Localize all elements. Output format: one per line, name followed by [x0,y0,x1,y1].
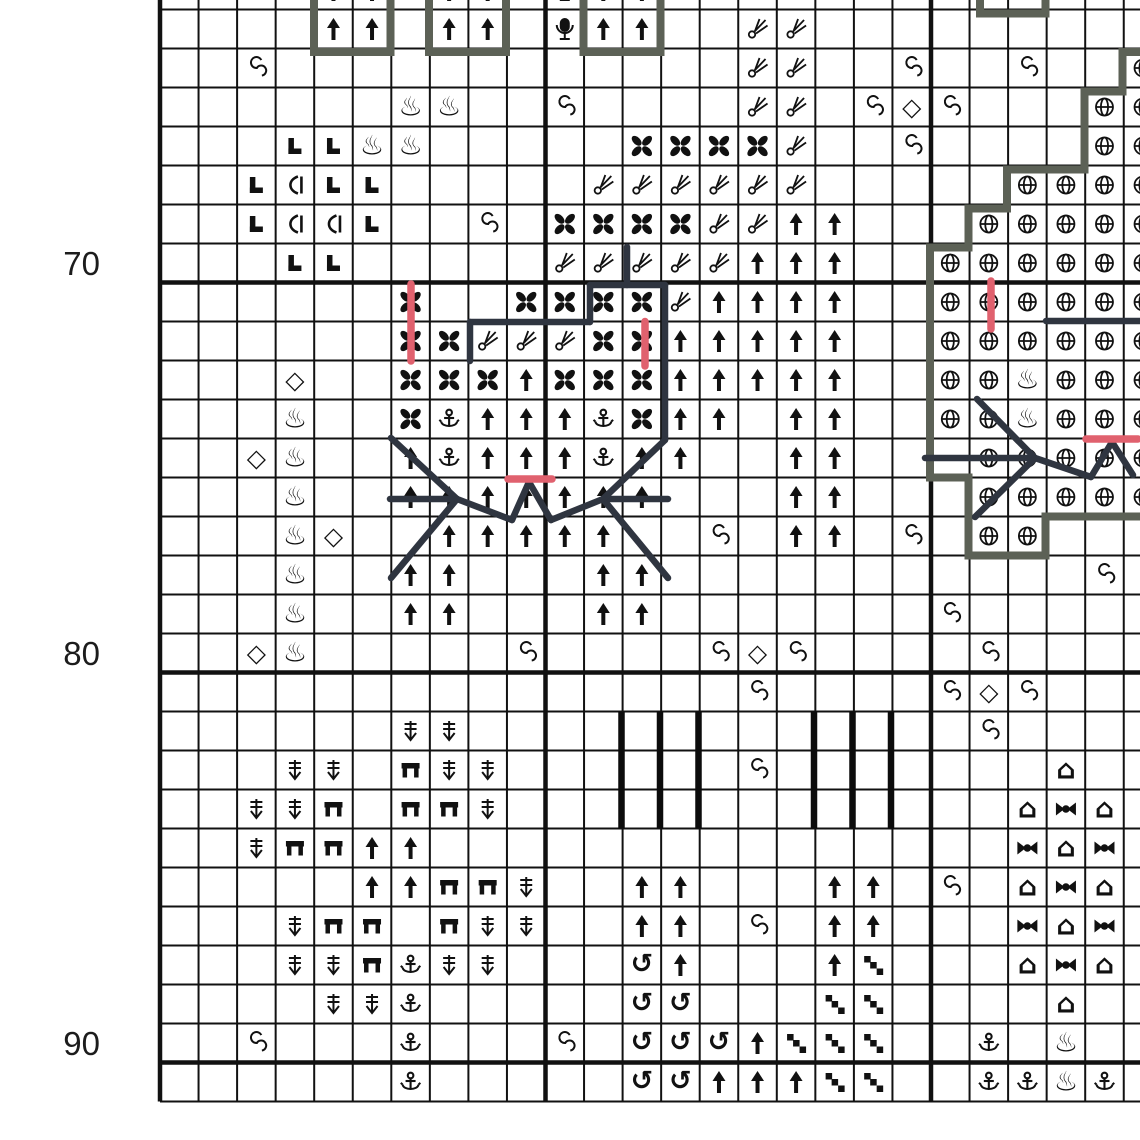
symbol-clover-flower [668,212,692,236]
symbol-clover-flower [630,290,654,314]
symbol-squiggle [906,57,921,75]
symbol-open-scissors [518,331,537,350]
symbol-house: ⌂ [1056,911,1075,942]
symbol-hot-springs: ♨ [1015,404,1039,435]
symbol-arrow-up [674,876,687,898]
symbol-squiggle [482,213,497,231]
symbol-circled-bean [1057,177,1074,194]
symbol-arrow-up [443,18,456,40]
symbol-hot-springs: ♨ [1054,1028,1078,1059]
symbol-hot-springs: ♨ [1015,365,1039,396]
symbol-clover-flower [437,368,461,392]
symbol-circled-bean [1135,450,1140,467]
symbol-corner-block [288,138,301,154]
symbol-circled-bean [1019,333,1036,350]
symbol-angle-bracket-bar [290,216,301,233]
symbol-undo-circle-arrow: ↺ [631,988,654,1019]
symbol-circled-bean [1019,489,1036,506]
symbol-arrow-up [404,564,417,586]
symbol-house: ⌂ [1056,989,1075,1020]
symbol-squiggle [983,642,998,660]
symbol-arrow-up [790,213,803,235]
symbol-squiggle [906,135,921,153]
symbol-anchor [594,410,614,427]
symbol-circled-bean [1019,177,1036,194]
symbol-arrow-up [597,564,610,586]
symbol-arrow-up [790,408,803,430]
symbol-circled-bean [1135,294,1140,311]
symbol-house: ⌂ [1095,794,1114,825]
symbol-undo-circle-arrow: ↺ [669,1027,692,1058]
symbol-table-block [402,802,420,817]
symbol-stair-blocks [864,1073,883,1092]
symbol-circled-bean [1135,99,1140,116]
symbol-circled-bean [942,333,959,350]
symbol-arrow-up [790,525,803,547]
symbol-house: ⌂ [1095,950,1114,981]
chart-canvas: ♨♨◇♨♨◇♨♨♨◇♨♨♨◇♨♨◇♨◇◇⌂⌂⌂⌂⌂⌂⌂↺⌂⌂↺↺⌂↺↺↺♨↺↺♨ [0,0,1140,1140]
symbol-open-scissors [749,58,768,77]
symbol-arrow-up [635,0,648,1]
symbol-candy-bowtie [1056,959,1076,972]
symbol-undo-circle-arrow: ↺ [669,1066,692,1097]
symbol-circled-bean [980,372,997,389]
symbol-arrow-up [867,915,880,937]
symbol-squiggle [945,681,960,699]
symbol-corner-block [366,216,379,232]
symbol-anchor [979,1034,999,1051]
symbol-arrow-up [481,447,494,469]
symbol-circled-bean [980,216,997,233]
symbol-squiggle [945,96,960,114]
symbol-candy-bowtie [1017,920,1037,933]
symbol-circled-bean [942,294,959,311]
symbol-arrow-up [558,486,571,508]
symbol-open-scissors [556,253,575,272]
symbol-clover-flower [591,290,615,314]
symbol-squiggle [906,525,921,543]
symbol-open-scissors [710,214,729,233]
symbol-arrow-up [597,18,610,40]
symbol-table-block [479,880,497,895]
symbol-arrow-up [828,408,841,430]
symbol-clover-flower [553,290,577,314]
symbol-arrow-up [828,486,841,508]
symbol-clover-flower [399,407,423,431]
symbol-undo-circle-arrow: ↺ [631,949,654,980]
symbol-arrow-up [481,18,494,40]
symbol-circled-bean [1135,60,1140,77]
symbol-arrow-up [828,447,841,469]
symbol-arrow-up [481,486,494,508]
symbol-open-scissors [787,58,806,77]
symbol-candy-bowtie [1017,842,1037,855]
symbol-stair-blocks [864,956,883,975]
symbol-squiggle [559,96,574,114]
symbol-double-stroke-down-arrow [443,760,455,779]
symbol-arrow-up [558,408,571,430]
symbol-squiggle [1099,564,1114,582]
symbol-stair-blocks [826,995,845,1014]
symbol-arrow-up [712,408,725,430]
symbol-clover-flower [553,368,577,392]
symbol-squiggle [251,57,266,75]
symbol-double-stroke-down-arrow [482,955,494,974]
symbol-circled-bean [1096,99,1113,116]
symbol-corner-block [250,177,263,193]
symbol-open-scissors [672,175,691,194]
symbol-arrow-up [828,330,841,352]
symbol-arrow-up [481,408,494,430]
symbol-corner-block [327,255,340,271]
symbol-arrow-up [790,447,803,469]
symbol-anchor [401,956,421,973]
symbol-arrow-up [520,408,533,430]
symbol-circled-bean [942,372,959,389]
symbol-open-diamond: ◇ [902,93,922,122]
symbol-arrow-up [597,0,610,1]
symbol-double-stroke-down-arrow [250,838,262,857]
symbol-arrow-up [712,330,725,352]
symbol-open-scissors [787,19,806,38]
symbol-arrow-up [366,837,379,859]
symbol-arrow-up [790,252,803,274]
symbol-arrow-up [790,369,803,391]
symbol-arrow-up [790,330,803,352]
symbol-arrow-up [327,18,340,40]
symbol-arrow-up [443,0,456,1]
symbol-double-stroke-down-arrow [327,760,339,779]
symbol-arrow-up [635,603,648,625]
symbol-anchor [401,1073,421,1090]
symbol-house: ⌂ [1095,872,1114,903]
symbol-hot-springs: ♨ [283,404,307,435]
symbol-squiggle [983,720,998,738]
symbol-table-block [324,841,342,856]
symbol-squiggle [714,525,729,543]
symbol-corner-block [327,177,340,193]
symbol-double-stroke-down-arrow [250,799,262,818]
symbol-arrow-up [366,876,379,898]
symbol-open-scissors [710,175,729,194]
symbol-double-stroke-down-arrow [405,721,417,740]
symbol-table-block [440,802,458,817]
symbol-table-block [286,841,304,856]
symbol-clover-flower [437,329,461,353]
symbol-open-scissors [595,253,614,272]
symbol-undo-circle-arrow: ↺ [631,1027,654,1058]
symbol-anchor [594,449,614,466]
symbol-squiggle [945,876,960,894]
symbol-arrow-up [828,954,841,976]
symbol-circled-bean [1135,372,1140,389]
symbol-squiggle [945,603,960,621]
symbol-candy-bowtie [1094,920,1114,933]
symbol-open-scissors [710,253,729,272]
symbol-double-stroke-down-arrow [482,760,494,779]
symbol-arrow-up [597,525,610,547]
symbol-arrow-up [558,447,571,469]
symbol-arrow-up [790,1071,803,1093]
symbol-open-scissors [787,175,806,194]
symbol-anchor [979,1073,999,1090]
symbol-hot-springs: ♨ [437,92,461,123]
symbol-arrow-up [635,18,648,40]
symbol-circled-bean [1096,489,1113,506]
symbol-circled-bean [1096,294,1113,311]
symbol-double-stroke-down-arrow [482,916,494,935]
symbol-arrow-up [790,291,803,313]
symbol-double-stroke-down-arrow [327,994,339,1013]
symbol-clover-flower [746,134,770,158]
symbol-double-stroke-down-arrow [327,955,339,974]
symbol-circled-bean [1019,216,1036,233]
symbol-circled-bean [1057,333,1074,350]
symbol-arrow-up [520,525,533,547]
symbol-undo-circle-arrow: ↺ [708,1027,731,1058]
symbol-house: ⌂ [1056,833,1075,864]
symbol-open-scissors [749,175,768,194]
symbol-squiggle [521,642,536,660]
symbol-arrow-up [443,564,456,586]
symbol-circled-bean [980,255,997,272]
symbol-arrow-up [712,291,725,313]
symbol-arrow-up [481,0,494,1]
symbol-arrow-up [404,837,417,859]
symbol-hot-springs: ♨ [360,131,384,162]
symbol-arrow-up [828,291,841,313]
symbol-open-scissors [479,331,498,350]
symbol-arrow-up [404,603,417,625]
symbol-undo-circle-arrow: ↺ [669,988,692,1019]
symbol-open-scissors [749,19,768,38]
symbol-anchor [401,995,421,1012]
symbol-microphone [557,18,573,39]
symbol-arrow-up [828,252,841,274]
symbol-circled-bean [1096,255,1113,272]
symbol-double-stroke-down-arrow [289,799,301,818]
symbol-arrow-up [674,915,687,937]
row-label-90: 90 [40,1027,100,1060]
symbol-squiggle [868,96,883,114]
symbol-circled-bean [1057,255,1074,272]
symbol-circled-bean [1096,138,1113,155]
symbol-open-scissors [672,292,691,311]
symbol-arrow-up [674,447,687,469]
symbol-open-scissors [595,175,614,194]
row-label-80: 80 [40,637,100,670]
symbol-circled-bean [1057,489,1074,506]
symbol-double-stroke-down-arrow [289,916,301,935]
symbol-squiggle [1022,681,1037,699]
symbol-arrow-up [751,369,764,391]
symbol-circled-bean [1096,216,1113,233]
symbol-open-diamond: ◇ [285,366,305,395]
symbol-arrow-up [674,369,687,391]
symbol-arrow-up [674,954,687,976]
symbol-circled-bean [980,333,997,350]
symbol-arrow-up [366,0,379,1]
symbol-house: ⌂ [1018,794,1037,825]
symbol-squiggle [714,642,729,660]
symbol-arrow-up [366,18,379,40]
symbol-open-diamond: ◇ [247,444,267,473]
symbol-arrow-up [828,876,841,898]
symbol-circled-bean [1019,528,1036,545]
symbol-arrow-up [751,1071,764,1093]
symbol-circled-bean [1057,216,1074,233]
symbol-arrow-up [674,330,687,352]
symbol-arrow-up [635,915,648,937]
symbol-squiggle [559,1032,574,1050]
symbol-circled-bean [1019,255,1036,272]
symbol-circled-bean [1057,294,1074,311]
symbol-double-stroke-down-arrow [443,955,455,974]
symbol-anchor [1095,1073,1115,1090]
symbol-corner-block [366,177,379,193]
symbol-arrow-up [327,0,340,1]
symbol-hot-springs: ♨ [283,638,307,669]
symbol-open-scissors [633,253,652,272]
symbol-table-block [440,880,458,895]
symbol-circled-bean [1135,489,1140,506]
symbol-clover-flower [514,290,538,314]
symbol-house: ⌂ [1018,872,1037,903]
symbol-squiggle [752,915,767,933]
symbol-arrow-up [520,447,533,469]
symbol-corner-block [288,255,301,271]
symbol-corner-block [250,216,263,232]
symbol-clover-flower [630,407,654,431]
symbol-clover-flower [399,368,423,392]
symbol-squiggle [752,681,767,699]
symbol-undo-circle-arrow: ↺ [631,1066,654,1097]
symbol-clover-flower [707,134,731,158]
symbol-circled-bean [1096,411,1113,428]
symbol-candy-bowtie [1094,842,1114,855]
symbol-arrow-up [404,876,417,898]
symbol-double-stroke-down-arrow [289,955,301,974]
symbol-hot-springs: ♨ [283,599,307,630]
symbol-open-diamond: ◇ [247,639,267,668]
symbol-hot-springs: ♨ [283,560,307,591]
symbol-house: ⌂ [1018,950,1037,981]
symbol-arrow-up [481,525,494,547]
row-label-70: 70 [40,247,100,280]
symbol-candy-bowtie [1056,881,1076,894]
symbol-open-scissors [787,97,806,116]
symbol-candy-bowtie [1056,803,1076,816]
symbol-double-stroke-down-arrow [520,916,532,935]
pattern-chart: ♨♨◇♨♨◇♨♨♨◇♨♨♨◇♨♨◇♨◇◇⌂⌂⌂⌂⌂⌂⌂↺⌂⌂↺↺⌂↺↺↺♨↺↺♨ [0,0,1140,1140]
symbol-stair-blocks [864,995,883,1014]
symbol-stair-blocks [787,1034,806,1053]
symbol-circled-bean [942,255,959,272]
symbol-circled-bean [1057,411,1074,428]
symbol-arrow-up [597,603,610,625]
symbol-corner-block [327,138,340,154]
symbol-table-block [363,919,381,934]
symbol-table-block [363,958,381,973]
symbol-circled-bean [1096,372,1113,389]
symbol-double-stroke-down-arrow [366,994,378,1013]
symbol-table-block [440,919,458,934]
symbol-open-diamond: ◇ [979,678,999,707]
symbol-circled-bean [1135,216,1140,233]
symbol-arrow-up [751,291,764,313]
symbol-table-block [324,802,342,817]
symbol-table-block [402,763,420,778]
symbol-anchor [1018,1073,1038,1090]
symbol-open-scissors [749,97,768,116]
symbol-circled-bean [1096,177,1113,194]
symbol-open-scissors [556,331,575,350]
symbol-circled-bean [1135,333,1140,350]
symbol-circled-bean [1057,372,1074,389]
symbol-anchor [439,410,459,427]
symbol-clover-flower [668,134,692,158]
symbol-angle-bracket-bar [290,177,301,194]
symbol-hot-springs: ♨ [283,521,307,552]
symbol-clover-flower [630,134,654,158]
symbol-arrow-up [635,564,648,586]
symbol-circled-bean [1096,333,1113,350]
symbol-open-scissors [633,175,652,194]
symbol-arrow-up [443,525,456,547]
symbol-circled-bean [1135,138,1140,155]
symbol-double-stroke-down-arrow [520,877,532,896]
symbol-clover-flower [591,329,615,353]
symbol-squiggle [1022,57,1037,75]
symbol-squiggle [251,1032,266,1050]
symbol-open-scissors [749,214,768,233]
symbol-hot-springs: ♨ [283,482,307,513]
symbol-stair-blocks [826,1034,845,1053]
symbol-clover-flower [630,212,654,236]
symbol-circled-bean [1135,255,1140,272]
symbol-stair-blocks [864,1034,883,1053]
symbol-anchor [439,449,459,466]
symbol-double-stroke-down-arrow [289,760,301,779]
symbol-arrow-up [751,252,764,274]
symbol-arrow-up [443,603,456,625]
symbol-open-diamond: ◇ [748,639,768,668]
symbol-clover-flower [476,368,500,392]
symbol-angle-bracket-bar [329,216,340,233]
symbol-open-scissors [672,253,691,272]
symbol-open-scissors [787,136,806,155]
symbol-squiggle [752,759,767,777]
symbol-circled-bean [980,528,997,545]
symbol-clover-flower [553,212,577,236]
symbol-hot-springs: ♨ [1054,1067,1078,1098]
symbol-house: ⌂ [1056,755,1075,786]
symbol-arrow-up [828,213,841,235]
symbol-stair-blocks [826,1073,845,1092]
symbol-table-block [324,919,342,934]
symbol-squiggle [791,642,806,660]
symbol-arrow-up [790,486,803,508]
symbol-arrow-up [520,369,533,391]
symbol-circled-bean [1135,177,1140,194]
symbol-arrow-up [558,525,571,547]
cross-stitch-pattern-page: ♨♨◇♨♨◇♨♨♨◇♨♨♨◇♨♨◇♨◇◇⌂⌂⌂⌂⌂⌂⌂↺⌂⌂↺↺⌂↺↺↺♨↺↺♨… [0,0,1140,1140]
symbol-double-stroke-down-arrow [443,721,455,740]
symbol-open-diamond: ◇ [324,522,344,551]
symbol-arrow-up [828,525,841,547]
symbol-clover-flower [591,368,615,392]
symbol-arrow-up [828,915,841,937]
